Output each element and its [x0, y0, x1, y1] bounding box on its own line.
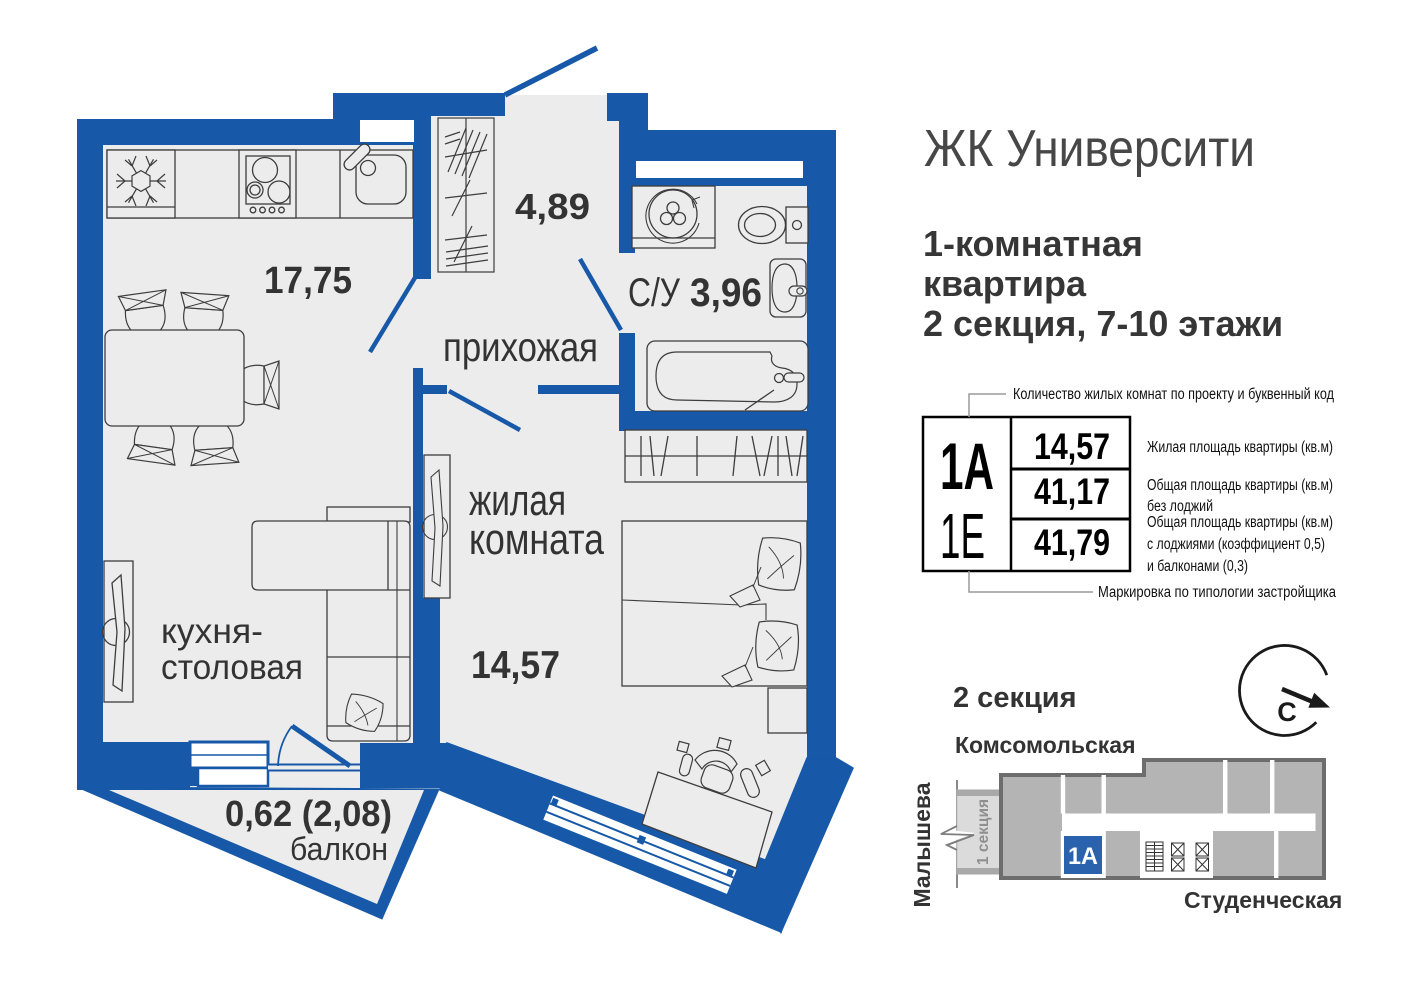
svg-text:1-комнатная: 1-комнатная: [923, 223, 1143, 264]
svg-text:квартира: квартира: [923, 263, 1087, 304]
svg-text:и балконами (0,3): и балконами (0,3): [1147, 558, 1248, 575]
svg-text:столовая: столовая: [161, 648, 303, 687]
svg-text:Комсомольская: Комсомольская: [955, 732, 1136, 758]
svg-text:2 секция: 2 секция: [953, 682, 1077, 714]
svg-text:С/У: С/У: [628, 271, 680, 315]
svg-text:ЖК Университи: ЖК Университи: [924, 120, 1255, 178]
svg-text:комната: комната: [469, 515, 604, 564]
svg-text:Студенческая: Студенческая: [1184, 887, 1342, 913]
svg-text:14,57: 14,57: [1034, 426, 1110, 467]
svg-text:1А: 1А: [1068, 843, 1098, 870]
svg-text:без лоджий: без лоджий: [1147, 498, 1213, 515]
svg-text:1А: 1А: [940, 429, 994, 503]
svg-text:4,89: 4,89: [515, 186, 590, 227]
svg-text:с лоджиями (коэффициент 0,5): с лоджиями (коэффициент 0,5): [1147, 536, 1325, 553]
svg-text:Общая площадь квартиры (кв.м): Общая площадь квартиры (кв.м): [1147, 514, 1333, 531]
svg-text:балкон: балкон: [290, 831, 388, 867]
svg-text:17,75: 17,75: [264, 260, 352, 302]
svg-text:прихожая: прихожая: [443, 324, 598, 370]
svg-text:Общая площадь квартиры (кв.м): Общая площадь квартиры (кв.м): [1147, 477, 1333, 494]
svg-text:2 секция, 7-10 этажи: 2 секция, 7-10 этажи: [923, 303, 1283, 344]
svg-text:3,96: 3,96: [690, 271, 762, 315]
svg-text:Малышева: Малышева: [909, 782, 935, 907]
svg-text:Маркировка по типологии застро: Маркировка по типологии застройщика: [1098, 584, 1336, 601]
svg-text:1Е: 1Е: [940, 500, 985, 572]
svg-text:Количество жилых комнат по про: Количество жилых комнат по проекту и бук…: [1013, 386, 1334, 403]
svg-text:1 секция: 1 секция: [975, 799, 992, 865]
svg-text:Жилая площадь квартиры (кв.м): Жилая площадь квартиры (кв.м): [1147, 439, 1333, 456]
svg-text:41,79: 41,79: [1034, 522, 1110, 563]
svg-text:кухня-: кухня-: [161, 612, 263, 651]
svg-text:0,62 (2,08): 0,62 (2,08): [225, 793, 392, 834]
svg-text:41,17: 41,17: [1034, 471, 1110, 512]
svg-text:С: С: [1277, 697, 1297, 727]
svg-text:14,57: 14,57: [471, 644, 560, 687]
